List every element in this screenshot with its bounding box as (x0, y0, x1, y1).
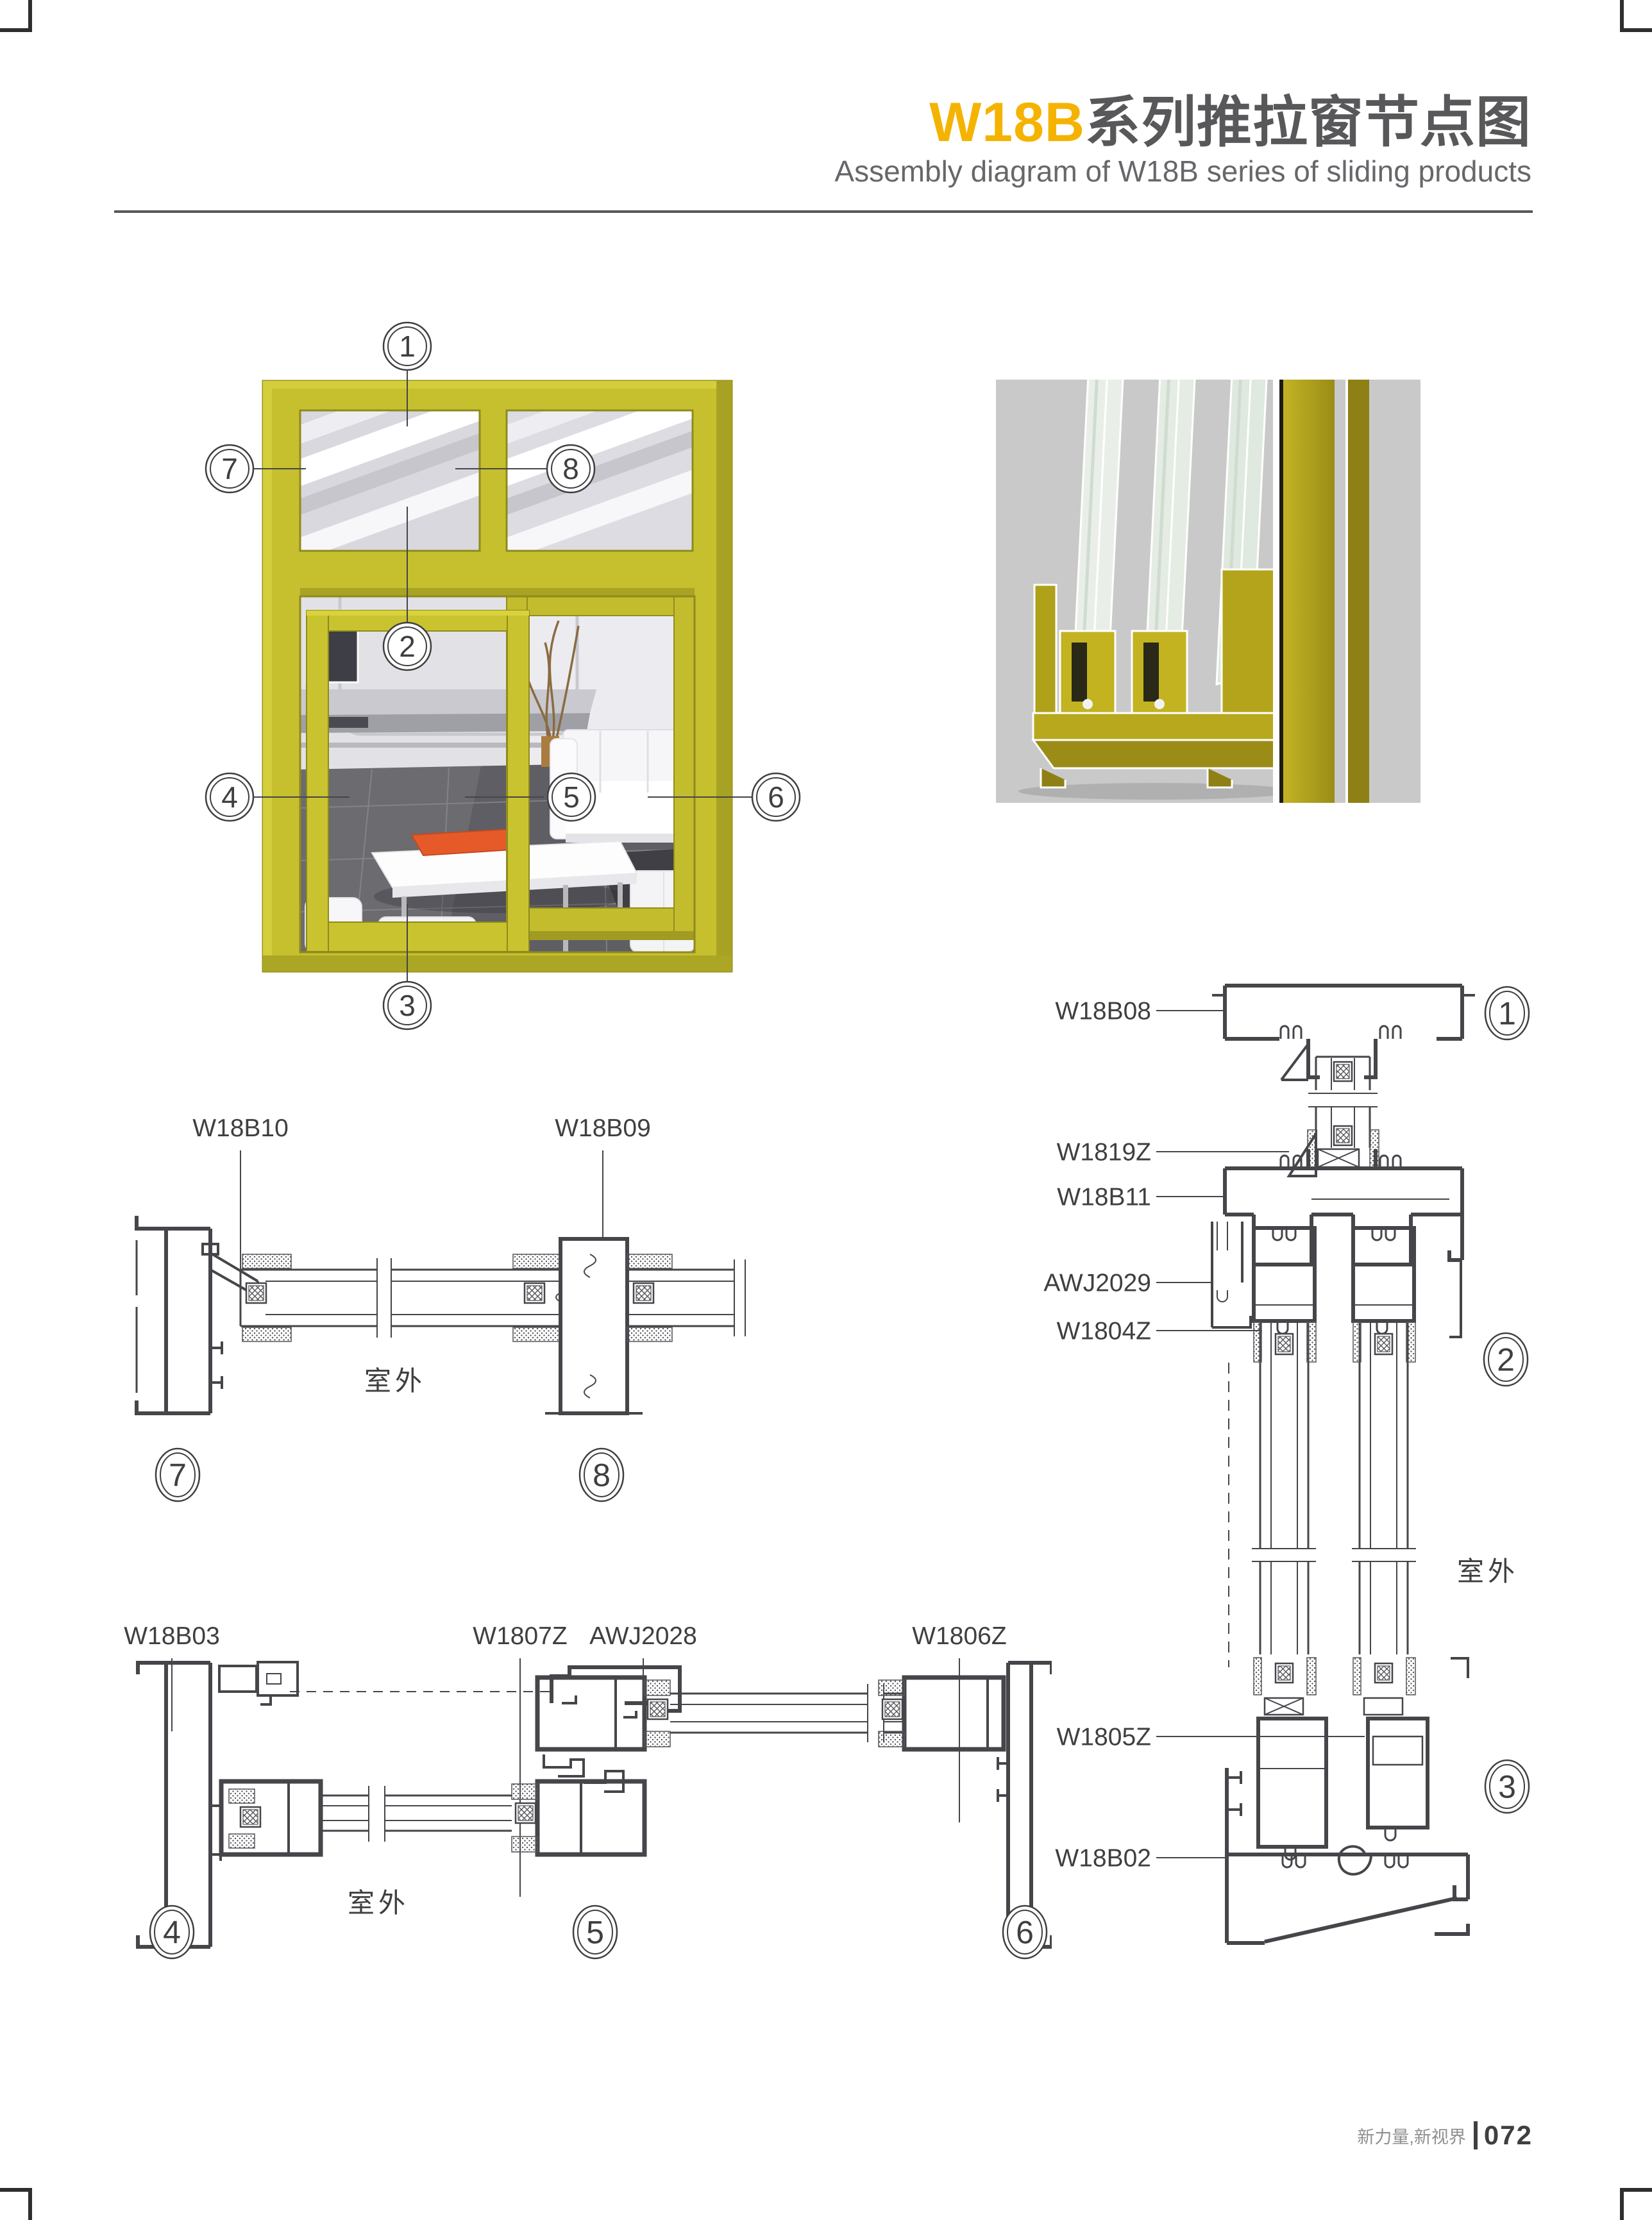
profile-label-w18b08: W18B08 (1055, 998, 1151, 1025)
svg-text:7: 7 (169, 1458, 187, 1493)
svg-text:3: 3 (399, 989, 416, 1022)
sash-top-boxes (1254, 1228, 1414, 1334)
sash-track (507, 931, 695, 940)
console-shelf-line (300, 743, 576, 748)
section-detail-1-2-3: W18B08 W1819Z W18B11 AWJ2029 W1804Z W180… (1026, 962, 1571, 1962)
callout-4-section: 4 (150, 1906, 194, 1958)
callout-2: 2 (383, 623, 431, 670)
svg-text:1: 1 (1498, 996, 1516, 1032)
awj2029-profile (1212, 1222, 1251, 1327)
page-header: W18B系列推拉窗节点图 Assembly diagram of W18B se… (834, 94, 1531, 189)
title-chinese: 系列推拉窗节点图 (1085, 92, 1531, 153)
svg-text:6: 6 (768, 780, 784, 814)
section-detail-4-5-6: W18B03 W1807Z AWJ2028 W1806Z (77, 1590, 1052, 2001)
profile-label-w18b03: W18B03 (124, 1622, 220, 1650)
callout-8: 8 (547, 445, 594, 492)
svg-text:7: 7 (221, 452, 238, 485)
sash-bottom-left (1254, 1658, 1326, 1860)
section-123-callouts: 1 2 3 (1484, 987, 1529, 1813)
profile-label-awj2028: AWJ2028 (589, 1622, 697, 1650)
callout-7-section: 7 (156, 1449, 199, 1501)
outdoor-label-123: 室外 (1457, 1556, 1519, 1586)
profile-label-w1805z: W1805Z (1057, 1724, 1151, 1751)
callout-4: 4 (206, 773, 253, 821)
section-78-callouts: 7 8 (156, 1449, 623, 1501)
callout-5: 5 (548, 773, 595, 821)
page-footer: 新力量,新视界 072 (1357, 2120, 1533, 2151)
glass-run-lower (321, 1786, 512, 1842)
svg-text:8: 8 (593, 1458, 611, 1493)
profile-label-w18b11: W18B11 (1057, 1184, 1151, 1211)
callout-1: 1 (383, 323, 431, 370)
outdoor-label-456: 室外 (348, 1888, 409, 1918)
callout-7: 7 (206, 445, 253, 492)
footer-divider-bar (1474, 2121, 1478, 2149)
sill-profile (1227, 1658, 1468, 1943)
profile-3d-render (996, 380, 1420, 803)
sash-glass-columns (1252, 1321, 1416, 1654)
footer-page-number: 072 (1484, 2120, 1533, 2151)
title-series-code: W18B (929, 92, 1085, 153)
profile-label-w18b02: W18B02 (1055, 1845, 1151, 1872)
svg-text:1: 1 (399, 330, 416, 363)
svg-text:4: 4 (221, 780, 238, 814)
sash-bottom-right (1353, 1658, 1428, 1840)
svg-text:5: 5 (586, 1915, 604, 1951)
profile-label-w18b10: W18B10 (192, 1114, 289, 1142)
left-jamb-profile (138, 1662, 298, 1947)
callout-2-section: 2 (1484, 1333, 1528, 1386)
interior-scene (300, 577, 695, 954)
sash-end-box-left (221, 1781, 321, 1854)
section-456-callouts: 4 5 6 (150, 1906, 1047, 1958)
callout-6: 6 (752, 773, 800, 821)
glass-run-left (240, 1254, 560, 1341)
callout-8-section: 8 (580, 1449, 623, 1501)
svg-text:3: 3 (1498, 1769, 1516, 1805)
crop-mark-top-left-icon (0, 0, 30, 30)
crop-mark-top-right-icon (1622, 0, 1652, 30)
glass-run-right (627, 1254, 745, 1341)
transom-profile (1225, 1149, 1462, 1337)
glass-run-upper (670, 1684, 904, 1742)
window-overview-illustration: 1 7 8 2 4 5 6 3 (147, 321, 827, 1064)
svg-text:5: 5 (563, 780, 580, 814)
sash-highlight (307, 610, 529, 616)
callout-1-section: 1 (1485, 987, 1529, 1039)
crop-mark-bottom-right-icon (1622, 2190, 1652, 2220)
interlock-assembly (512, 1667, 680, 1854)
render-right-jamb (1273, 380, 1369, 803)
page-subtitle: Assembly diagram of W18B series of slidi… (834, 154, 1531, 189)
crop-mark-bottom-left-icon (0, 2190, 30, 2220)
svg-text:4: 4 (163, 1915, 181, 1951)
profile-label-w1806z: W1806Z (912, 1622, 1006, 1650)
callout-3: 3 (383, 982, 431, 1029)
outdoor-label-78: 室外 (364, 1366, 426, 1396)
catalog-page: W18B系列推拉窗节点图 Assembly diagram of W18B se… (0, 0, 1652, 2220)
profile-label-w1804z: W1804Z (1057, 1318, 1151, 1345)
callout-3-section: 3 (1485, 1760, 1529, 1813)
section-detail-7-8: W18B10 W18B09 (96, 1103, 834, 1526)
header-divider-rule (114, 210, 1533, 213)
profile-label-w1819z: W1819Z (1057, 1139, 1151, 1166)
profile-label-w1807z: W1807Z (473, 1622, 567, 1650)
footer-slogan: 新力量,新视界 (1357, 2123, 1466, 2148)
transom-rail-shadow (300, 588, 695, 596)
profile-label-awj2029: AWJ2029 (1043, 1270, 1151, 1297)
sash-box-right (879, 1678, 1004, 1749)
callout-5-section: 5 (573, 1906, 617, 1958)
profile-label-w18b09: W18B09 (555, 1114, 651, 1142)
page-title: W18B系列推拉窗节点图 (834, 94, 1531, 151)
svg-text:2: 2 (399, 630, 416, 663)
svg-text:2: 2 (1497, 1342, 1515, 1378)
svg-text:8: 8 (562, 452, 579, 485)
